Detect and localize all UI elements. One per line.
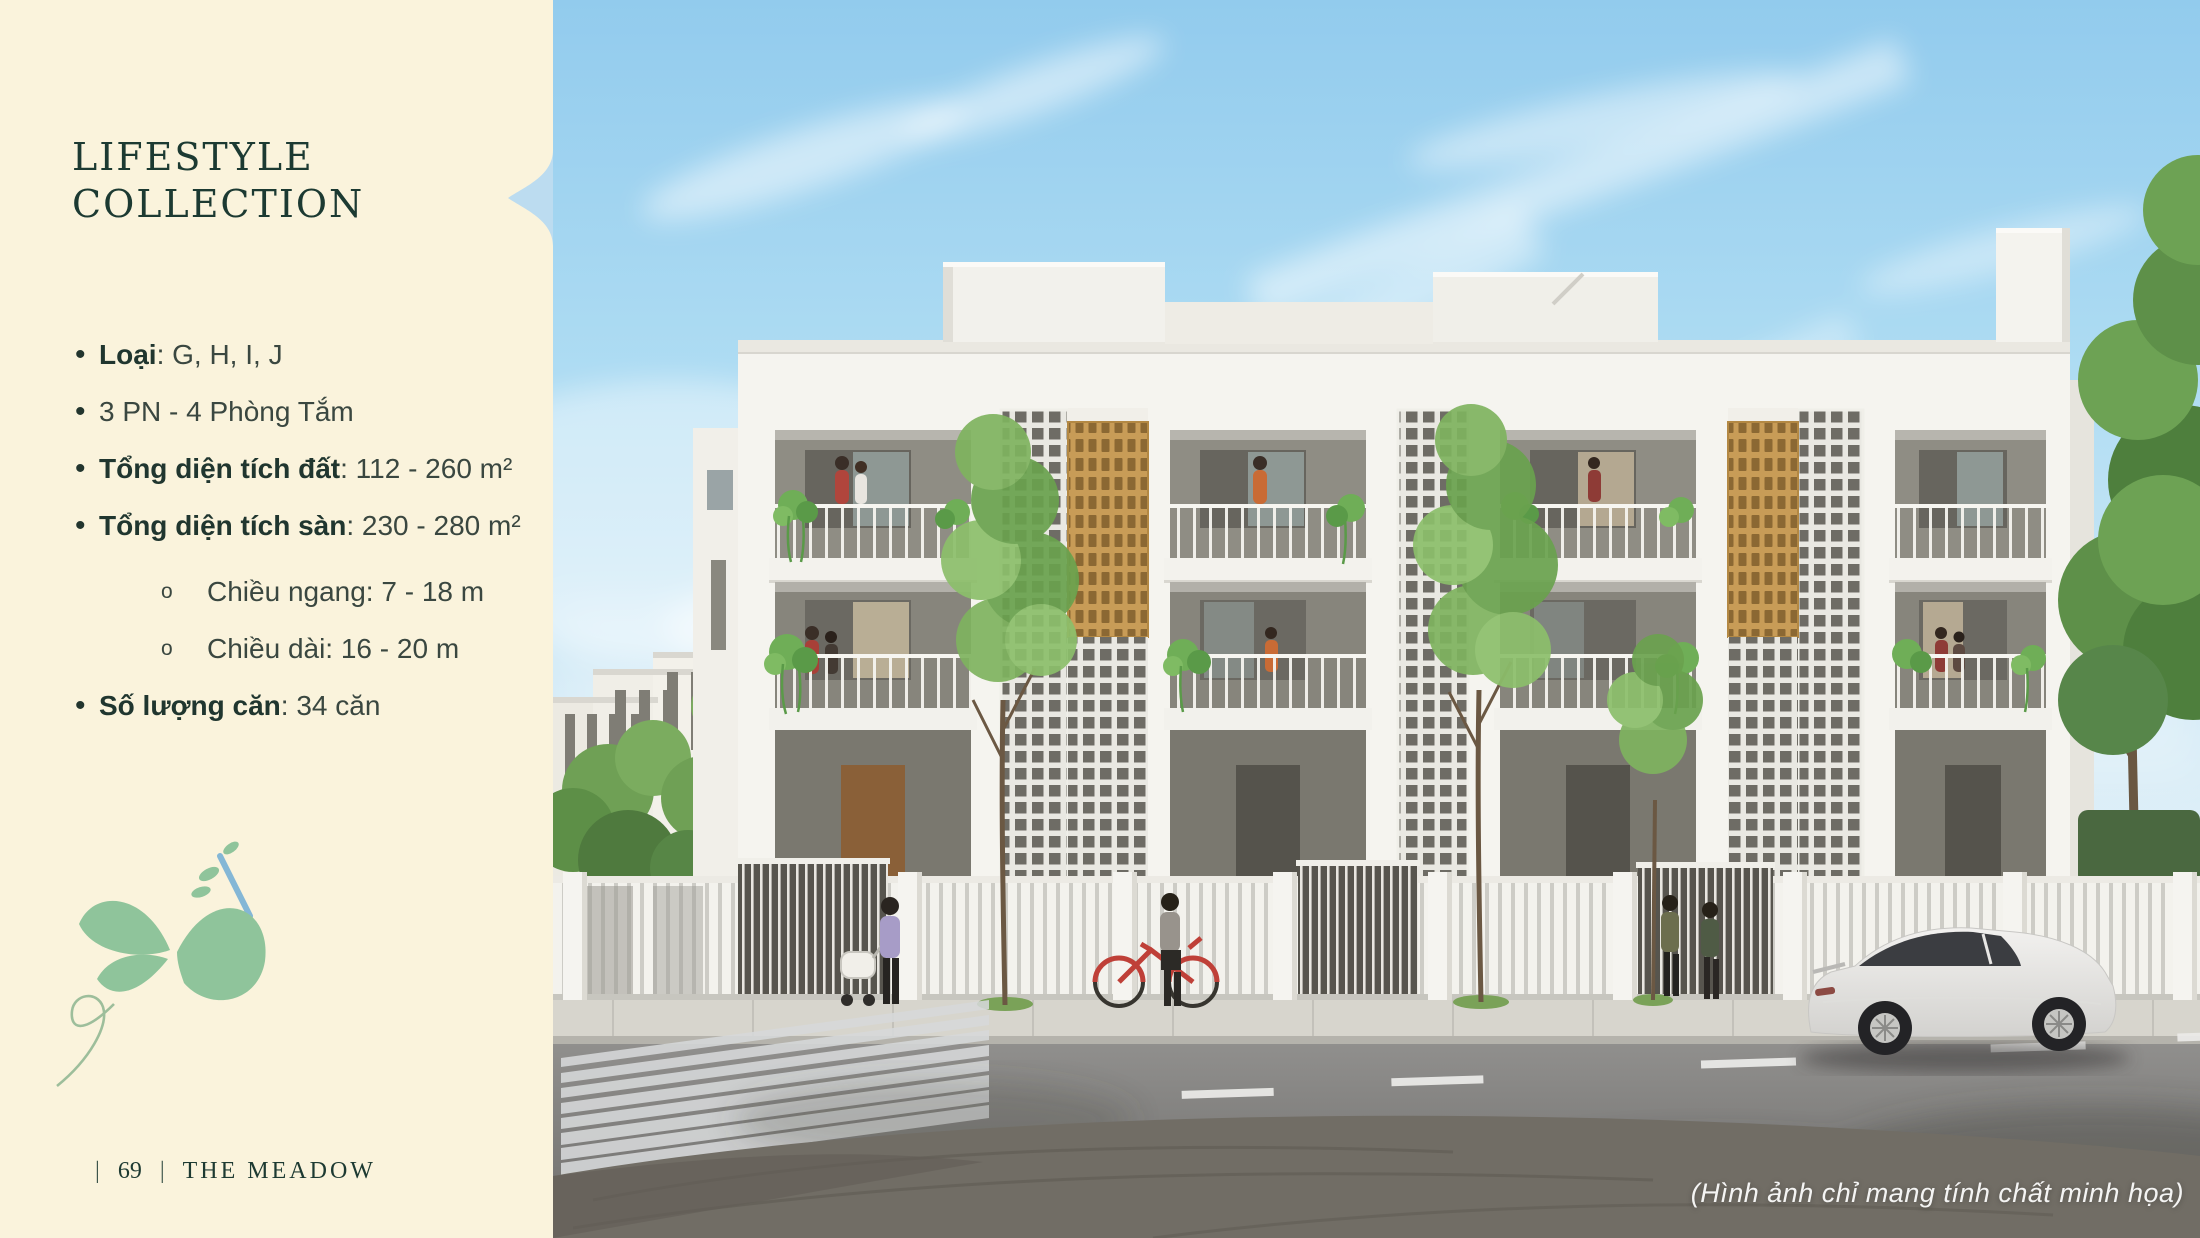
footer-divider: | — [160, 1158, 165, 1185]
brochure-page: LIFESTYLE COLLECTION • Loại : G, H, I, J… — [0, 0, 2200, 1238]
bullet-icon: • — [75, 452, 99, 486]
logo-swirl — [57, 996, 114, 1086]
footer-divider: | — [95, 1158, 100, 1185]
spec-item-type: • Loại : G, H, I, J — [75, 326, 521, 383]
spec-item-rooms: • 3 PN - 4 Phòng Tắm — [75, 383, 521, 440]
spec-item-unit-count: • Số lượng căn : 34 căn — [75, 677, 521, 734]
circle-bullet-icon: o — [161, 637, 207, 661]
title-line-2: COLLECTION — [72, 181, 364, 228]
hero-photo: (Hình ảnh chỉ mang tính chất minh họa) — [553, 0, 2200, 1238]
logo-leaves — [79, 901, 266, 1000]
logo-stem-leaves — [190, 839, 241, 900]
spec-subitem-width: o Chiều ngang: 7 - 18 m — [161, 563, 521, 620]
panel-notch — [508, 150, 553, 246]
spec-item-land-area: • Tổng diện tích đất : 112 - 260 m² — [75, 440, 521, 497]
spec-subitem-length: o Chiều dài: 16 - 20 m — [161, 620, 521, 677]
info-panel: LIFESTYLE COLLECTION • Loại : G, H, I, J… — [0, 0, 553, 1238]
title-line-1: LIFESTYLE — [72, 134, 364, 181]
project-name: THE MEADOW — [183, 1158, 376, 1185]
bullet-icon: • — [75, 338, 99, 372]
spec-item-floor-area: • Tổng diện tích sàn : 230 - 280 m² — [75, 497, 521, 554]
architectural-rendering — [553, 0, 2200, 1238]
spec-list: • Loại : G, H, I, J • 3 PN - 4 Phòng Tắm… — [75, 326, 521, 734]
bullet-icon: • — [75, 395, 99, 429]
bullet-icon: • — [75, 509, 99, 543]
meadow-leaf-logo — [52, 832, 287, 1117]
page-title: LIFESTYLE COLLECTION — [72, 134, 364, 228]
circle-bullet-icon: o — [161, 580, 207, 604]
page-number: 69 — [118, 1158, 142, 1185]
bullet-icon: • — [75, 689, 99, 723]
photo-caption: (Hình ảnh chỉ mang tính chất minh họa) — [1691, 1178, 2184, 1209]
page-footer: | 69 | THE MEADOW — [95, 1158, 376, 1185]
logo-stem — [220, 856, 250, 916]
